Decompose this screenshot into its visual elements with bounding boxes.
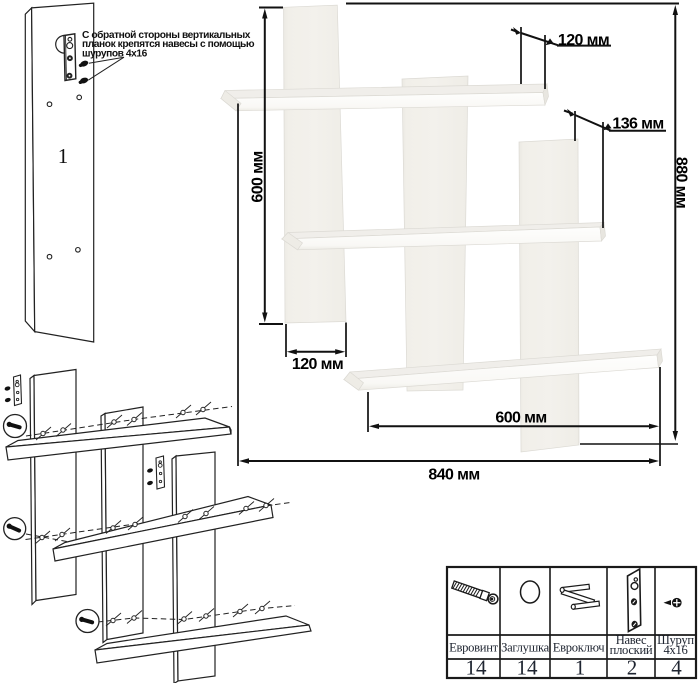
svg-text:1: 1 xyxy=(58,144,69,168)
svg-text:600 мм: 600 мм xyxy=(249,151,266,202)
svg-text:4: 4 xyxy=(671,656,682,680)
svg-text:Евровинт: Евровинт xyxy=(449,641,499,655)
svg-text:шурупов 4х16: шурупов 4х16 xyxy=(82,49,148,60)
svg-text:120 мм: 120 мм xyxy=(292,356,343,373)
svg-text:2: 2 xyxy=(627,656,638,680)
svg-text:Заглушка: Заглушка xyxy=(501,641,550,655)
svg-text:840 мм: 840 мм xyxy=(428,467,479,484)
svg-text:1: 1 xyxy=(575,656,586,680)
svg-text:880 мм: 880 мм xyxy=(673,157,690,208)
svg-text:600 мм: 600 мм xyxy=(495,410,546,427)
svg-text:120 мм: 120 мм xyxy=(558,32,609,49)
svg-text:14: 14 xyxy=(466,656,488,680)
svg-text:Евроключ: Евроключ xyxy=(553,641,605,655)
svg-text:14: 14 xyxy=(517,656,539,680)
svg-text:136 мм: 136 мм xyxy=(612,116,663,133)
